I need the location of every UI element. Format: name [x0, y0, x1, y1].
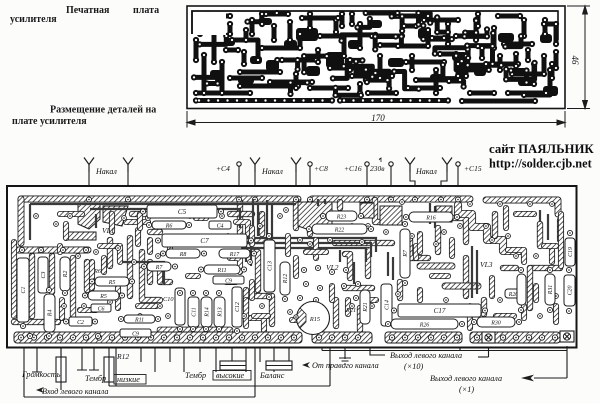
svg-text:C4: C4	[217, 223, 224, 229]
svg-text:C12: C12	[235, 302, 241, 312]
svg-text:R17: R17	[229, 252, 241, 258]
svg-text:R15: R15	[309, 316, 320, 323]
svg-text:Выход левого канала: Выход левого канала	[430, 374, 502, 383]
svg-text:C3: C3	[41, 272, 47, 279]
svg-text:R6: R6	[165, 223, 173, 229]
svg-text:C13: C13	[268, 261, 274, 271]
svg-text:сайт ПАЯЛЬНИК: сайт ПАЯЛЬНИК	[489, 142, 594, 156]
svg-text:Баланс: Баланс	[259, 371, 285, 380]
svg-text:R21: R21	[345, 307, 356, 314]
svg-text:R12: R12	[283, 274, 289, 285]
svg-text:R7: R7	[403, 249, 409, 258]
svg-text:+С8: +С8	[314, 164, 328, 173]
svg-text:R4: R4	[48, 310, 54, 318]
svg-text:(×1): (×1)	[459, 385, 474, 394]
svg-text:Накал: Накал	[415, 167, 437, 176]
svg-text:C14: C14	[385, 300, 391, 310]
svg-text:Накал: Накал	[95, 167, 117, 176]
svg-text:+С16: +С16	[344, 164, 362, 173]
svg-text:R12: R12	[116, 352, 129, 361]
svg-text:VL1: VL1	[102, 226, 115, 235]
svg-text:R6: R6	[93, 268, 102, 275]
svg-text:R7: R7	[155, 265, 164, 271]
svg-text:(×10): (×10)	[404, 362, 423, 371]
svg-text:C7: C7	[200, 237, 209, 245]
svg-text:230в: 230в	[370, 164, 385, 173]
svg-text:Накал: Накал	[261, 167, 283, 176]
svg-text:усилителя: усилителя	[10, 14, 57, 25]
svg-text:Громкость: Громкость	[21, 370, 61, 379]
svg-text:плате усилителя: плате усилителя	[12, 116, 87, 127]
svg-text:C19: C19	[568, 247, 574, 257]
svg-text:R13: R13	[218, 307, 224, 318]
svg-text:C11: C11	[192, 307, 198, 316]
svg-text:R23: R23	[336, 214, 347, 220]
svg-text:От правого канала: От правого канала	[312, 361, 379, 370]
svg-text:R21: R21	[363, 302, 369, 313]
svg-text:C10: C10	[163, 296, 174, 303]
svg-text:VL2: VL2	[326, 263, 339, 272]
svg-text:Печатная: Печатная	[66, 5, 110, 16]
svg-text:Тембр: Тембр	[85, 374, 106, 383]
svg-text:170: 170	[371, 113, 385, 123]
svg-text:плата: плата	[133, 5, 159, 16]
svg-text:R26: R26	[419, 322, 430, 328]
svg-text:R11: R11	[134, 317, 144, 323]
svg-text:высокие: высокие	[216, 371, 245, 380]
svg-text:http://solder.cjb.net: http://solder.cjb.net	[489, 157, 593, 171]
svg-text:C9: C9	[132, 331, 139, 337]
svg-text:+С15: +С15	[464, 164, 482, 173]
svg-text:R22: R22	[334, 227, 345, 233]
svg-text:R14: R14	[205, 307, 211, 318]
svg-text:46: 46	[570, 56, 580, 66]
svg-text:C17: C17	[434, 307, 446, 315]
svg-text:R11: R11	[216, 268, 226, 274]
svg-text:Тембр: Тембр	[185, 371, 206, 380]
svg-text:R2: R2	[63, 271, 69, 279]
svg-text:низкие: низкие	[117, 375, 140, 384]
svg-text:Выход левого канала: Выход левого канала	[390, 351, 462, 360]
svg-text:R16: R16	[425, 215, 436, 221]
svg-text:+С4: +С4	[216, 164, 230, 173]
svg-text:C5: C5	[178, 208, 187, 216]
svg-text:R5: R5	[99, 294, 107, 300]
svg-text:R30: R30	[490, 320, 501, 326]
svg-text:C9: C9	[225, 278, 232, 284]
svg-text:C6: C6	[98, 306, 105, 312]
svg-text:VL3: VL3	[480, 260, 493, 269]
svg-text:Вход левого канала: Вход левого канала	[42, 387, 108, 396]
svg-text:C20: C20	[568, 286, 574, 296]
svg-text:R5: R5	[108, 280, 116, 286]
svg-text:Размещение деталей на: Размещение деталей на	[50, 105, 156, 116]
svg-text:R8: R8	[179, 252, 187, 258]
svg-text:C2: C2	[77, 320, 84, 326]
svg-text:C1: C1	[21, 287, 27, 294]
svg-text:R31: R31	[548, 285, 554, 296]
